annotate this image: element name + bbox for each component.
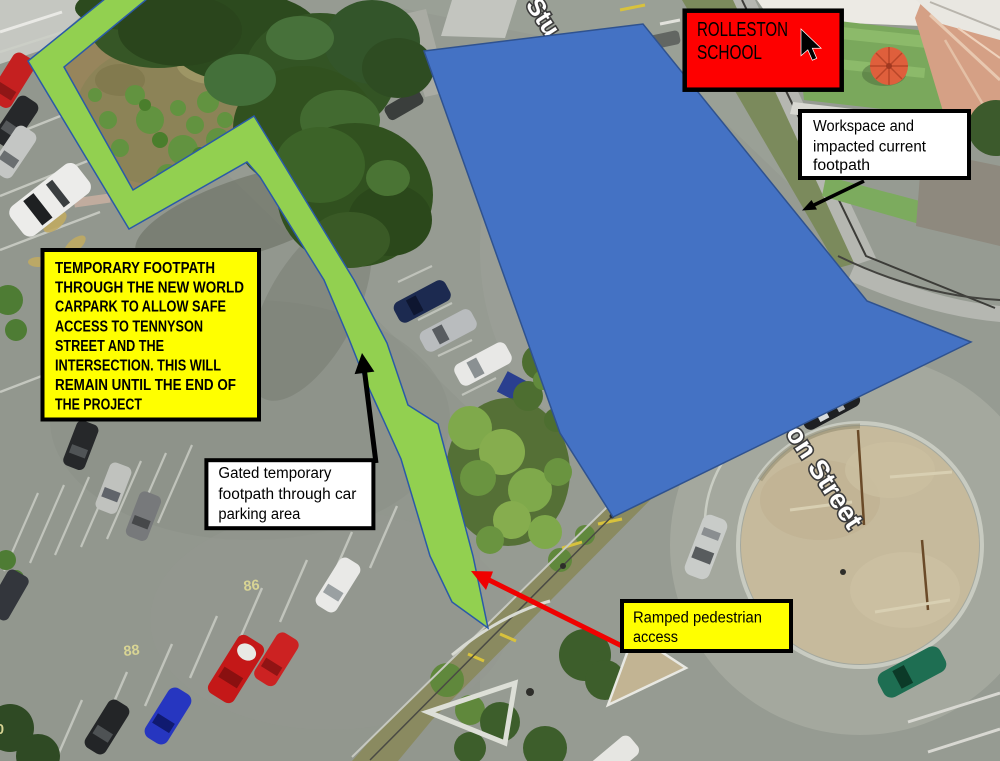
svg-text:86: 86 bbox=[243, 577, 261, 595]
svg-text:parking area: parking area bbox=[218, 506, 300, 523]
svg-text:access: access bbox=[633, 629, 678, 646]
svg-text:REMAIN UNTIL THE END OF: REMAIN UNTIL THE END OF bbox=[55, 377, 236, 394]
svg-text:ACCESS TO TENNYSON: ACCESS TO TENNYSON bbox=[55, 319, 203, 336]
svg-text:THROUGH THE NEW WORLD: THROUGH THE NEW WORLD bbox=[55, 280, 244, 297]
svg-text:impacted current: impacted current bbox=[813, 139, 927, 156]
svg-text:SCHOOL: SCHOOL bbox=[697, 42, 762, 64]
svg-text:88: 88 bbox=[123, 642, 141, 660]
svg-text:CARPARK TO ALLOW SAFE: CARPARK TO ALLOW SAFE bbox=[55, 299, 226, 316]
svg-text:ROLLESTON: ROLLESTON bbox=[697, 19, 788, 41]
svg-text:Ramped pedestrian: Ramped pedestrian bbox=[633, 610, 762, 627]
svg-text:STREET AND THE: STREET AND THE bbox=[55, 338, 164, 355]
svg-text:Gated temporary: Gated temporary bbox=[218, 465, 331, 482]
svg-text:Workspace and: Workspace and bbox=[813, 118, 914, 135]
svg-text:THE PROJECT: THE PROJECT bbox=[55, 397, 142, 414]
svg-text:TEMPORARY FOOTPATH: TEMPORARY FOOTPATH bbox=[55, 260, 215, 277]
svg-text:INTERSECTION. THIS WILL: INTERSECTION. THIS WILL bbox=[55, 358, 221, 375]
svg-text:footpath: footpath bbox=[813, 157, 870, 174]
svg-text:0: 0 bbox=[0, 722, 4, 738]
svg-text:footpath through car: footpath through car bbox=[218, 486, 356, 503]
